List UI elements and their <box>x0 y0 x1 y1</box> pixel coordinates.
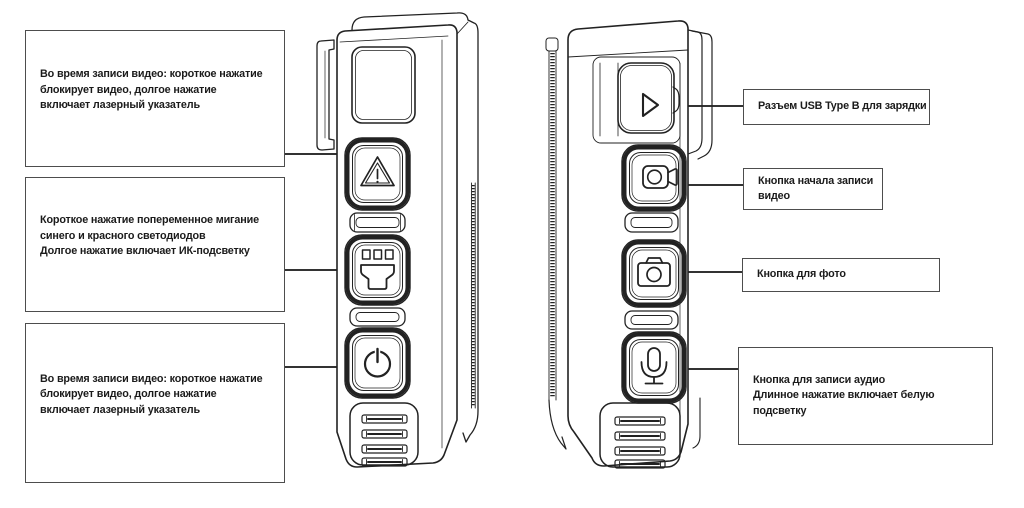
callout-usb: Разъем USB Type B для зарядки <box>743 89 930 125</box>
callout-photo: Кнопка для фото <box>742 258 940 292</box>
belt-clip <box>317 40 334 150</box>
callout-audio: Кнопка для записи аудио Длинное нажатие … <box>738 347 993 445</box>
callout-laser-top: Во время записи видео: короткое нажатие … <box>25 30 285 167</box>
callout-laser-bottom: Во время записи видео: короткое нажатие … <box>25 323 285 483</box>
body-camera-right-view <box>540 8 730 478</box>
diagram-canvas: Во время записи видео: короткое нажатие … <box>0 0 1024 508</box>
callout-led-ir: Короткое нажатие попеременное мигание си… <box>25 177 285 312</box>
callout-video: Кнопка начала записи видео <box>743 168 883 210</box>
body-camera-left-view <box>300 8 490 478</box>
